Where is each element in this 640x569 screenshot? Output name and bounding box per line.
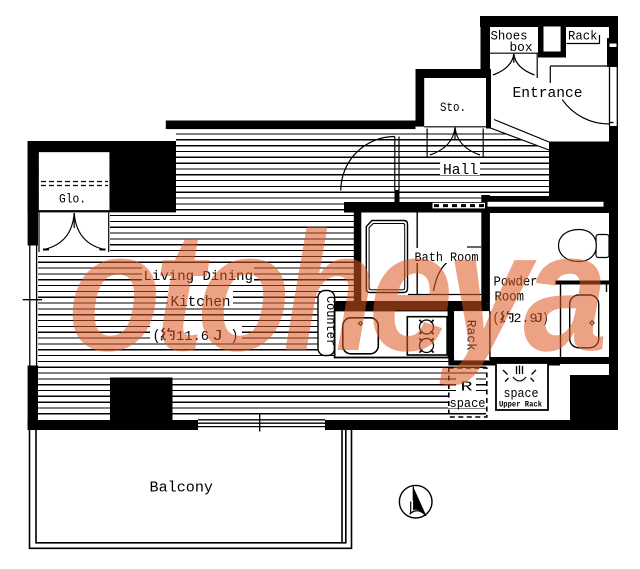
svg-text:Entrance: Entrance xyxy=(513,86,583,102)
svg-text:Hall: Hall xyxy=(443,163,478,179)
svg-text:Rack: Rack xyxy=(568,30,598,44)
svg-text:space: space xyxy=(504,387,539,401)
svg-text:Upper Rack: Upper Rack xyxy=(499,401,542,410)
svg-text:space: space xyxy=(450,397,486,411)
svg-text:box: box xyxy=(510,41,533,55)
svg-text:Balcony: Balcony xyxy=(150,480,214,497)
svg-text:Sto.: Sto. xyxy=(440,100,466,115)
